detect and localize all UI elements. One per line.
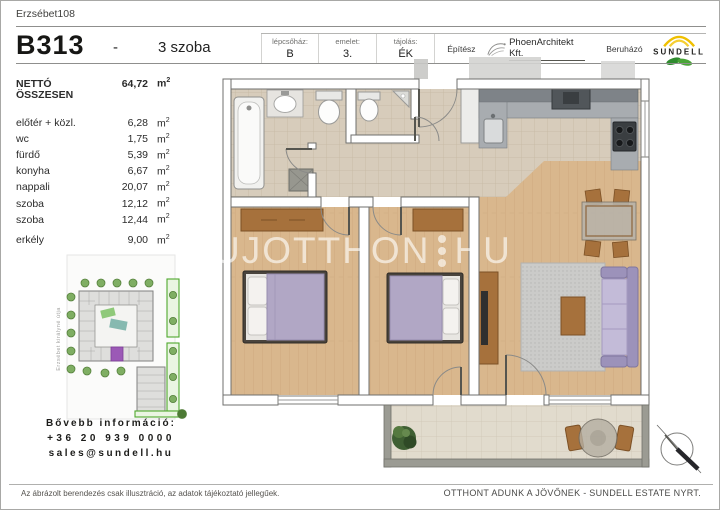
kitchen-sink	[484, 119, 503, 143]
room-area: 12,44	[102, 215, 148, 226]
watermark: UJOTTHON HU	[213, 230, 512, 272]
siteplan-secondary-building	[137, 367, 165, 413]
header-divider-top	[16, 26, 706, 27]
developer-role-label: Beruházó	[601, 44, 648, 54]
company-slogan: OTTHONT ADUNK A JÖVŐNEK - SUNDELL ESTATE…	[444, 488, 701, 498]
area-row: előtér + közl. 6,28 m2	[16, 117, 179, 130]
room-name: fürdő	[16, 150, 102, 161]
duvet	[390, 276, 442, 340]
watermark-dots	[438, 235, 446, 267]
room-area: 9,00	[102, 235, 148, 246]
area-row: szoba 12,44 m2	[16, 213, 179, 226]
room-area: 5,39	[102, 150, 148, 161]
room-name: nappali	[16, 182, 102, 193]
room-count: 3 szoba	[158, 39, 211, 56]
room-area: 20,07	[102, 182, 148, 193]
contact-block: Bővebb információ: +36 20 939 0000 sales…	[16, 418, 206, 459]
room-name: szoba	[16, 215, 102, 226]
dining-chair	[612, 241, 628, 257]
room-area: 6,28	[102, 118, 148, 129]
area-row: nappali 20,07 m2	[16, 181, 179, 194]
bathroom-sink	[274, 96, 296, 113]
area-row: wc 1,75 m2	[16, 133, 179, 146]
room-name: konyha	[16, 166, 102, 177]
pillow	[248, 277, 267, 305]
context-structures	[414, 57, 635, 79]
street-name: Erzsébet királyné útja	[56, 307, 62, 371]
room-area: 1,75	[102, 134, 148, 145]
toilet-tank	[316, 91, 342, 100]
pillow	[443, 308, 459, 334]
fridge-cabinet	[461, 89, 479, 143]
bathtub-faucet	[247, 106, 252, 111]
room-name: szoba	[16, 199, 102, 210]
siteplan-map: Erzsébet királyné útja	[51, 251, 191, 423]
architect-role-label: Építész	[447, 44, 475, 54]
double-bed	[387, 273, 463, 343]
room-area: 12,12	[102, 199, 148, 210]
area-row: fürdő 5,39 m2	[16, 149, 179, 162]
pillow	[443, 279, 459, 305]
siteplan-main-building	[79, 291, 153, 361]
total-label: NETTÓ ÖSSZESEN	[16, 79, 102, 101]
total-area-row: NETTÓ ÖSSZESEN 64,72 m2	[16, 77, 179, 101]
staircase-label: lépcsőház:	[262, 37, 318, 46]
toilet	[319, 100, 340, 124]
watermark-right: HU	[454, 230, 511, 272]
apartment-datasheet: Erzsébet108 B313 - 3 szoba lépcsőház: B …	[0, 0, 720, 510]
area-row: szoba 12,12 m2	[16, 197, 179, 210]
footer-divider	[9, 484, 713, 485]
compass-icon	[657, 425, 701, 473]
watermark-left: UJOTTHON	[213, 230, 430, 272]
unit-code: B313	[16, 30, 85, 61]
room-name: előtér + közl.	[16, 118, 102, 129]
pillow	[248, 307, 267, 335]
tv	[481, 291, 488, 345]
wc-toilet	[360, 99, 378, 121]
orientation-label: tájolás:	[377, 37, 434, 46]
cooktop	[613, 122, 636, 151]
area-table: NETTÓ ÖSSZESEN 64,72 m2 előtér + közl. 6…	[16, 77, 179, 250]
contact-email: sales@sundell.hu	[16, 448, 206, 459]
sofa	[601, 267, 638, 367]
duvet	[267, 274, 324, 340]
total-unit: m2	[148, 77, 179, 90]
highlighted-unit	[111, 347, 123, 361]
floor-label: emelet:	[319, 37, 376, 46]
contact-heading: Bővebb információ:	[16, 418, 206, 429]
dining-chair	[584, 240, 601, 257]
area-row: konyha 6,67 m2	[16, 165, 179, 178]
dresser	[241, 209, 323, 231]
room-area: 6,67	[102, 166, 148, 177]
room-name: wc	[16, 134, 102, 145]
double-bed	[243, 271, 327, 343]
contact-phone: +36 20 939 0000	[16, 433, 206, 444]
dresser	[413, 209, 463, 231]
room-name: erkély	[16, 235, 102, 246]
disclaimer-text: Az ábrázolt berendezés csak illusztráció…	[21, 489, 279, 498]
balcony-area-row: erkély 9,00 m2	[16, 234, 179, 247]
total-value: 64,72	[102, 79, 148, 90]
project-name: Erzsébet108	[16, 8, 75, 20]
dining-table	[582, 202, 636, 240]
title-dash: -	[113, 39, 118, 56]
coffee-table	[561, 297, 585, 335]
